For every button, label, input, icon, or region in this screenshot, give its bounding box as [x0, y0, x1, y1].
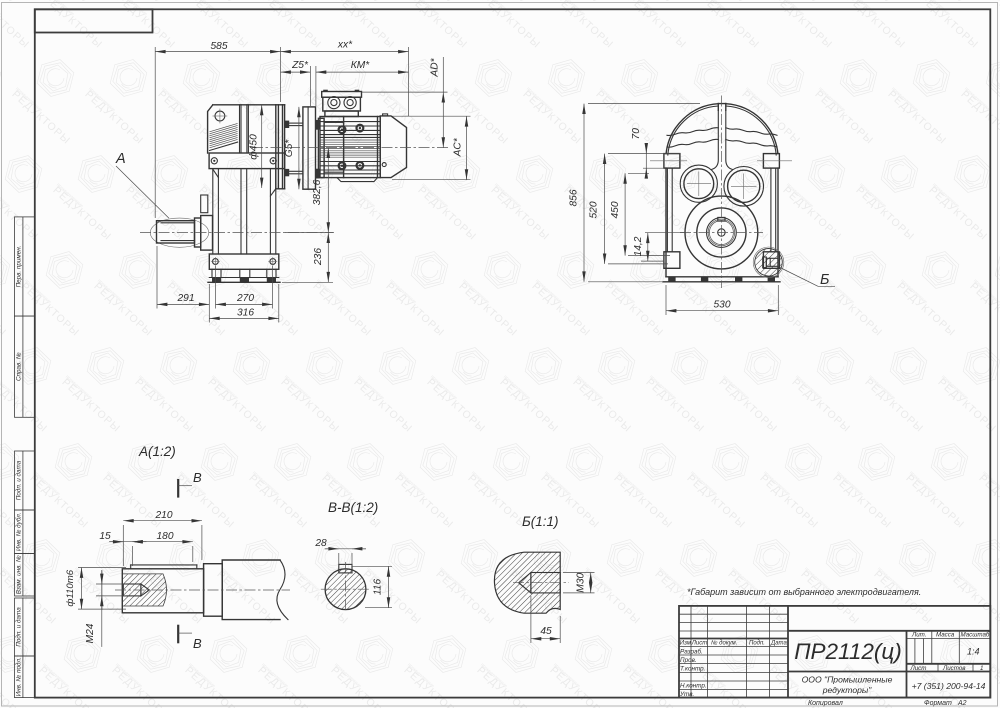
- svg-text:В: В: [193, 470, 202, 485]
- svg-text:М30: М30: [576, 572, 587, 592]
- svg-text:Подп. и дата: Подп. и дата: [14, 460, 22, 500]
- svg-text:Подп. и дата: Подп. и дата: [14, 607, 22, 647]
- svg-text:Z5*: Z5*: [291, 60, 309, 71]
- svg-text:Формат: Формат: [924, 700, 952, 707]
- svg-text:А(1:2): А(1:2): [138, 444, 176, 459]
- svg-text:520: 520: [589, 201, 600, 218]
- svg-text:45: 45: [540, 626, 552, 637]
- svg-text:*Габарит зависит от выбранного: *Габарит зависит от выбранного электродв…: [687, 587, 921, 597]
- svg-text:180: 180: [157, 531, 174, 542]
- svg-text:Изм: Изм: [680, 641, 691, 647]
- svg-text:ООО "Промышленные: ООО "Промышленные: [802, 675, 893, 685]
- svg-text:Б: Б: [820, 272, 829, 288]
- svg-text:291: 291: [177, 293, 195, 304]
- svg-text:70: 70: [631, 128, 642, 140]
- svg-text:Масштаб: Масштаб: [961, 632, 990, 639]
- svg-text:+7 (351) 200-94-14: +7 (351) 200-94-14: [912, 681, 986, 691]
- svg-text:Б(1:1): Б(1:1): [522, 514, 559, 529]
- svg-text:А: А: [115, 151, 126, 167]
- svg-text:№ докум.: № докум.: [711, 640, 737, 647]
- svg-text:270: 270: [236, 293, 254, 304]
- svg-text:G5*: G5*: [284, 139, 295, 158]
- svg-text:14,2: 14,2: [633, 236, 644, 256]
- svg-text:Инв. № подл.: Инв. № подл.: [14, 657, 22, 696]
- svg-text:116: 116: [373, 579, 384, 596]
- svg-text:210: 210: [155, 510, 173, 521]
- svg-text:316: 316: [237, 308, 254, 319]
- svg-text:ф450: ф450: [248, 134, 260, 160]
- svg-text:236: 236: [313, 248, 324, 266]
- svg-text:Перв. примен.: Перв. примен.: [15, 246, 22, 288]
- svg-text:Пров.: Пров.: [680, 657, 697, 664]
- svg-text:ф110m6: ф110m6: [65, 569, 76, 606]
- svg-text:Н.контр.: Н.контр.: [680, 683, 707, 690]
- svg-text:Листов: Листов: [942, 665, 966, 672]
- svg-text:xx*: xx*: [337, 40, 353, 51]
- svg-text:AD*: AD*: [430, 57, 441, 77]
- svg-text:Масса: Масса: [936, 632, 955, 639]
- svg-text:1:4: 1:4: [967, 647, 980, 657]
- svg-text:Справ. №: Справ. №: [15, 352, 22, 381]
- svg-text:Инв. № дубл.: Инв. № дубл.: [14, 512, 22, 551]
- svg-text:Т.контр.: Т.контр.: [680, 665, 705, 672]
- svg-text:530: 530: [714, 300, 731, 311]
- svg-text:856: 856: [569, 189, 580, 206]
- svg-text:1: 1: [980, 665, 983, 672]
- svg-text:Утв.: Утв.: [679, 691, 694, 698]
- svg-text:Лит.: Лит.: [911, 632, 927, 639]
- svg-text:AC*: AC*: [453, 137, 464, 157]
- svg-text:Лист: Лист: [691, 641, 707, 647]
- svg-text:450: 450: [610, 201, 621, 218]
- svg-text:Дата: Дата: [770, 641, 787, 647]
- svg-text:ПР2112(ц): ПР2112(ц): [794, 639, 902, 664]
- svg-text:Лист: Лист: [910, 665, 927, 672]
- svg-text:В: В: [193, 636, 202, 651]
- svg-text:585: 585: [211, 41, 228, 52]
- svg-text:Подп.: Подп.: [749, 641, 765, 647]
- svg-text:28: 28: [314, 538, 327, 549]
- svg-text:15: 15: [99, 531, 111, 542]
- svg-text:редукторы": редукторы": [822, 685, 873, 695]
- svg-text:А2: А2: [957, 700, 967, 707]
- svg-text:КМ*: КМ*: [351, 60, 370, 71]
- svg-text:М24: М24: [85, 623, 96, 643]
- svg-text:Взам. инв. №: Взам. инв. №: [15, 555, 22, 594]
- svg-text:Копировал: Копировал: [808, 700, 843, 707]
- svg-text:В-В(1:2): В-В(1:2): [328, 500, 378, 515]
- svg-text:382,6: 382,6: [312, 179, 323, 205]
- svg-text:Разраб.: Разраб.: [680, 647, 703, 655]
